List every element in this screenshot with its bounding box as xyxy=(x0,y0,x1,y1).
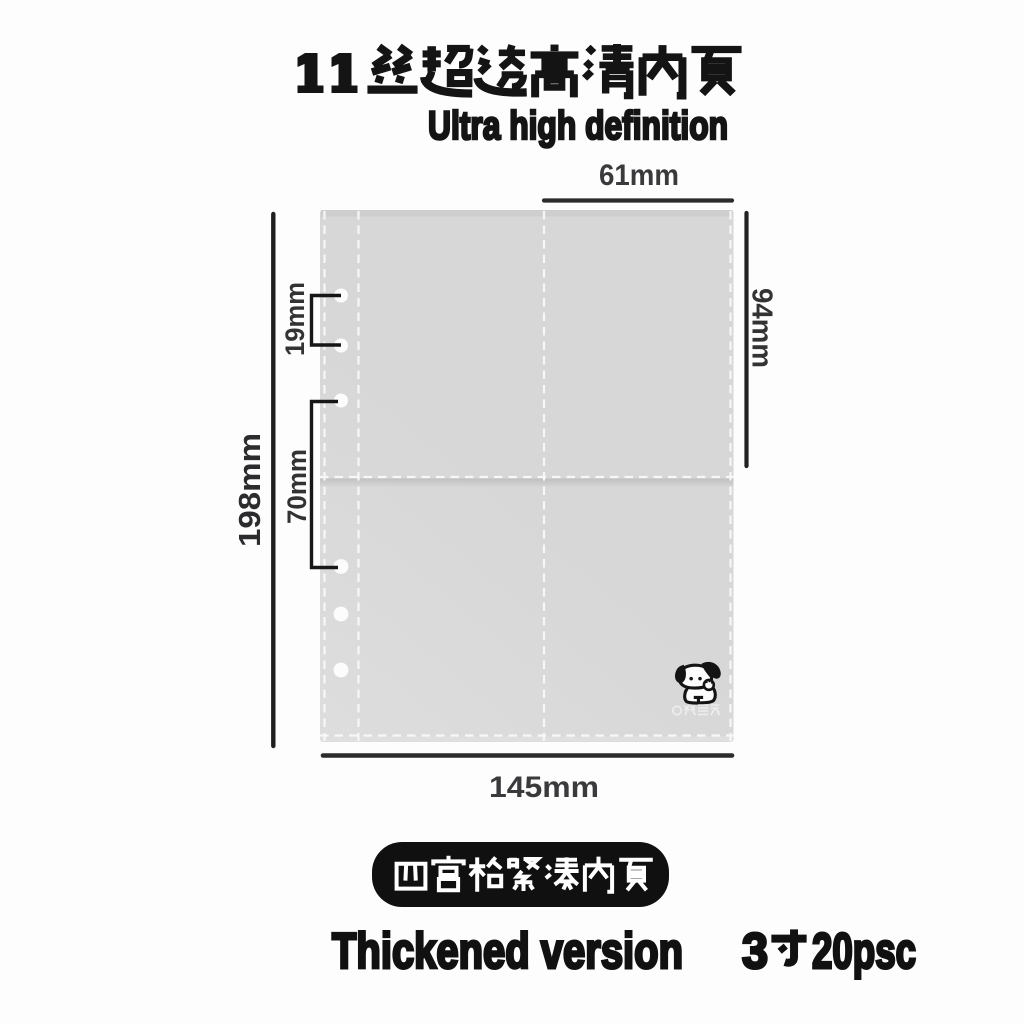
svg-text:70mm: 70mm xyxy=(282,449,312,524)
svg-text:Thickened version: Thickened version xyxy=(332,923,683,979)
svg-text:198mm: 198mm xyxy=(232,433,267,547)
svg-text:3: 3 xyxy=(742,923,768,979)
svg-text:61mm: 61mm xyxy=(599,159,679,192)
svg-text:Ultra high definition: Ultra high definition xyxy=(428,104,728,148)
svg-text:19mm: 19mm xyxy=(280,282,310,356)
svg-text:94mm: 94mm xyxy=(746,288,778,368)
svg-text:145mm: 145mm xyxy=(489,771,599,804)
svg-text:20psc: 20psc xyxy=(812,923,916,979)
